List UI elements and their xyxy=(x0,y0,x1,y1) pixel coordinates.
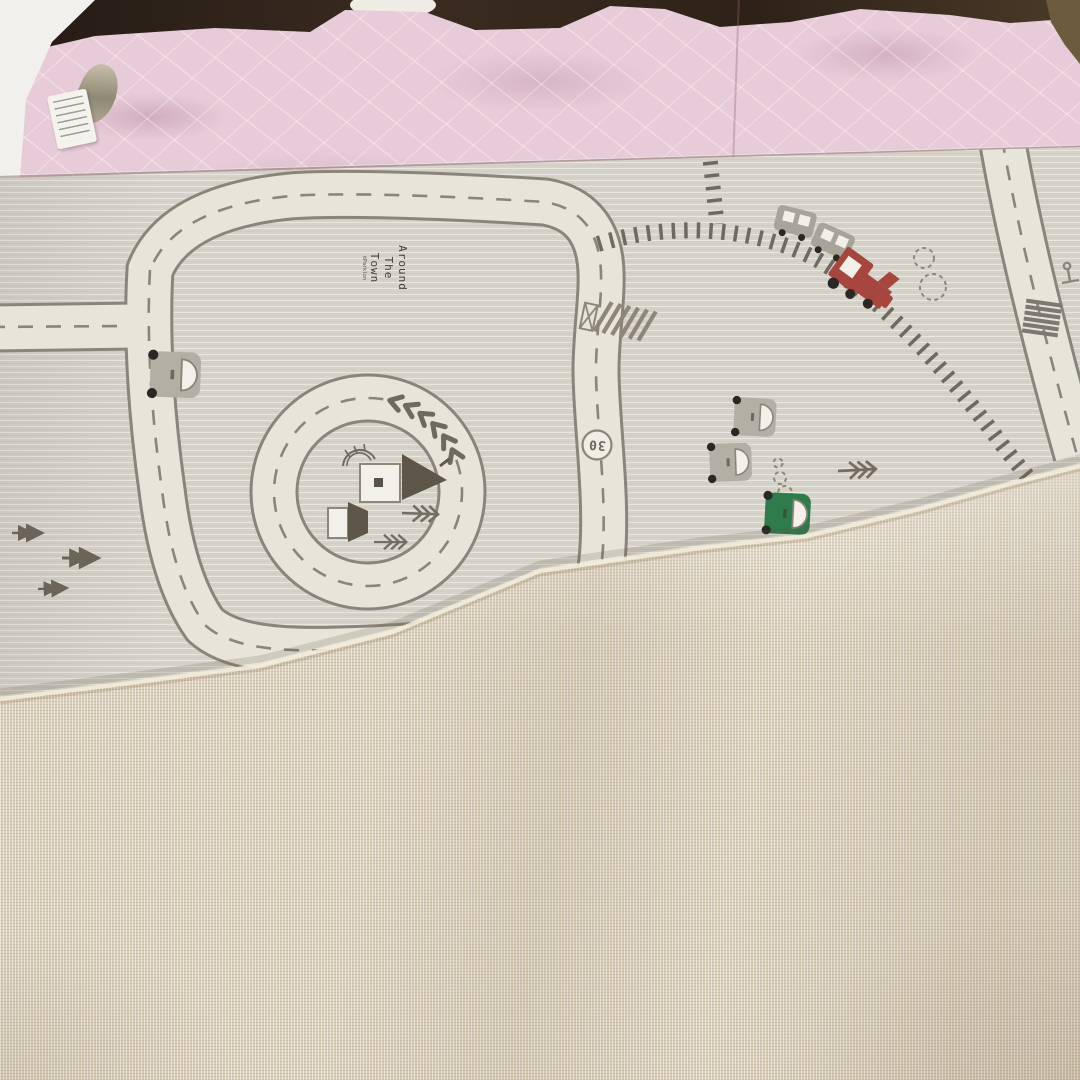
toy-train xyxy=(772,204,905,322)
mat-title: Around The Town ©Parklon xyxy=(351,232,409,304)
crosswalk-and-crossing-sign xyxy=(580,263,1079,343)
mat-title-credit: ©Parklon xyxy=(360,232,367,304)
road-chevrons xyxy=(388,394,463,463)
pine-trees xyxy=(12,524,102,599)
gray-car-2 xyxy=(707,441,753,483)
mat-title-line-2: The xyxy=(381,232,395,304)
train-engine xyxy=(822,243,905,322)
rainbow-sketch xyxy=(343,444,375,466)
houses xyxy=(328,454,449,542)
mat-title-line-1: Around xyxy=(395,232,409,304)
sketch-trees xyxy=(374,461,876,550)
green-car xyxy=(761,491,811,537)
smoke-puffs xyxy=(774,248,947,500)
photo-of-play-mat-on-bed: Around The Town ©Parklon 30 xyxy=(0,0,1080,1080)
railway-track xyxy=(598,149,1036,487)
train-wagon-2 xyxy=(808,221,857,265)
train-wagon-1 xyxy=(772,204,818,243)
road-sign-stub xyxy=(1062,263,1079,283)
speed-sign-30: 30 xyxy=(581,429,613,461)
mat-title-line-3: Town xyxy=(367,232,381,304)
gray-car-left xyxy=(147,349,202,399)
gray-car-1 xyxy=(731,396,777,439)
railway-siding xyxy=(709,149,717,224)
crosswalk-right-road xyxy=(1022,301,1062,336)
